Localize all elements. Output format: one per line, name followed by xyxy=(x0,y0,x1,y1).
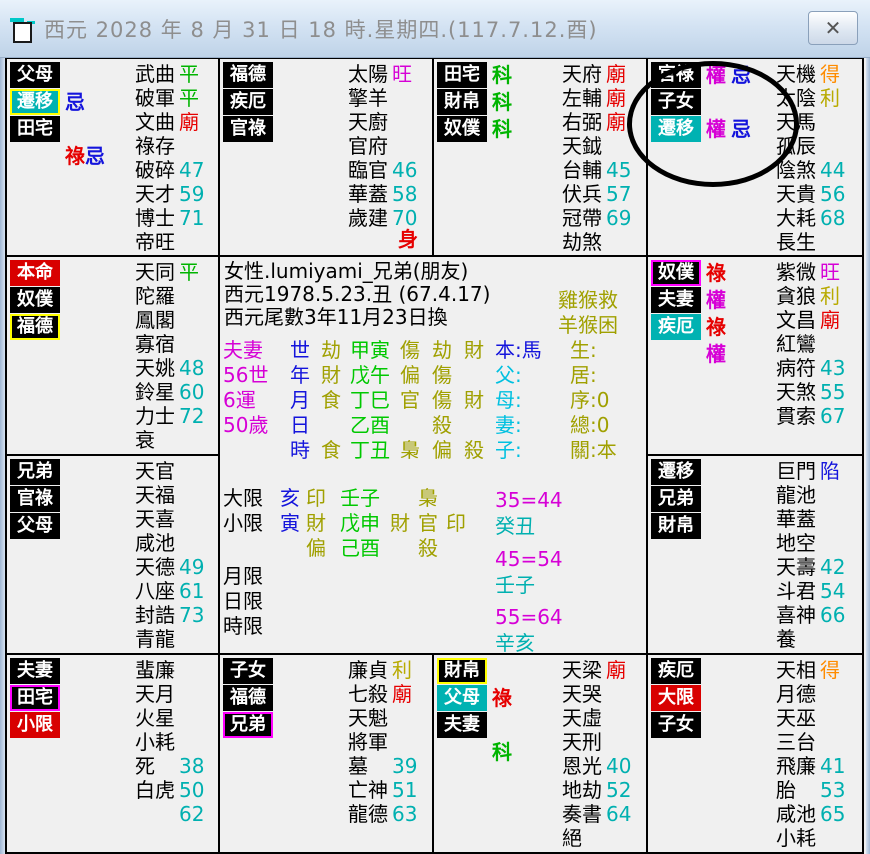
star-name: 華蓋 xyxy=(348,182,392,206)
star-name: 墓 xyxy=(348,754,392,778)
pillar-ten-god: 食 xyxy=(321,389,341,411)
palace-label: 兄弟 xyxy=(651,486,701,512)
star-value: 41 xyxy=(820,754,845,778)
limit-label: 時限 xyxy=(223,615,263,637)
star-name: 天巫 xyxy=(776,706,820,730)
star-line: 臨官46 xyxy=(348,158,417,182)
palace-label: 田宅 xyxy=(437,62,487,88)
fate-note: 序:0 xyxy=(570,389,609,411)
star-value: 得 xyxy=(820,62,840,86)
star-name: 官府 xyxy=(348,134,392,158)
decade-range: 35=44 xyxy=(495,489,563,511)
palace-label: 父母 xyxy=(10,62,60,88)
window-title: 西元 2028 年 8 月 31 日 18 時.星期四.(117.7.12.酉) xyxy=(44,14,598,44)
star-line: 龍德63 xyxy=(348,802,417,826)
star-line: 封誥73 xyxy=(135,603,204,627)
star-value: 57 xyxy=(606,182,631,206)
palace-label-row: 田宅 xyxy=(10,116,105,142)
palace-label-row: 疾厄 xyxy=(223,89,273,115)
palace-label-row: 田宅科 xyxy=(437,62,512,88)
star-name: 天才 xyxy=(135,182,179,206)
star-line: 天福 xyxy=(135,483,204,507)
palace-label: 子女 xyxy=(223,658,273,684)
star-line: 武曲平 xyxy=(135,62,204,86)
star-line: 天才59 xyxy=(135,182,204,206)
limit-label: 大限 xyxy=(223,487,263,509)
palace-cell-health[interactable]: 疾厄大限子女天相得月德天巫三台飛廉41胎53咸池65小耗 xyxy=(648,655,862,852)
pillar-stage: 夫妻 xyxy=(223,339,263,361)
star-line: 亡神51 xyxy=(348,778,417,802)
star-name: 七殺 xyxy=(348,682,392,706)
star-name: 紫微 xyxy=(776,260,820,284)
star-line: 龍池 xyxy=(776,483,845,507)
palace-label-row: 夫妻權 xyxy=(651,287,726,313)
star-line: 小耗 xyxy=(135,730,204,754)
pillar-branch-label: 世 xyxy=(290,339,310,361)
star-line: 廉貞利 xyxy=(348,658,417,682)
pillar-ten-god-slot: 財 xyxy=(464,339,484,361)
star-line: 衰 xyxy=(135,428,204,452)
star-name: 左輔 xyxy=(562,86,606,110)
star-line: 蜚廉 xyxy=(135,658,204,682)
palace-labels: 遷移兄弟財帛 xyxy=(651,459,701,540)
app-icon-page xyxy=(13,22,32,43)
transformation-mark-科: 科 xyxy=(492,116,512,142)
limit-ten-god-slot: 印 xyxy=(446,512,466,534)
star-name: 陀羅 xyxy=(135,284,179,308)
fate-note: 羊猴困 xyxy=(558,314,618,336)
star-name: 擎羊 xyxy=(348,86,392,110)
palace-label: 奴僕 xyxy=(437,116,487,142)
transformation-mark-祿: 祿 xyxy=(65,143,85,169)
star-line: 天廚 xyxy=(348,110,417,134)
star-name: 龍德 xyxy=(348,802,392,826)
pillar-ten-god-slot: 官 xyxy=(400,389,420,411)
limit-ten-god-slot: 官 xyxy=(418,512,438,534)
fate-note: 關:本 xyxy=(570,439,617,461)
star-name: 飛廉 xyxy=(776,754,820,778)
star-line: 天機得 xyxy=(776,62,845,86)
transformation-mark-祿: 祿 xyxy=(706,314,726,340)
star-line: 長生 xyxy=(776,230,845,254)
star-name: 白虎 xyxy=(135,778,179,802)
star-line: 冠帶69 xyxy=(562,206,631,230)
palace-label-row: 疾厄 xyxy=(651,658,701,684)
star-line: 飛廉41 xyxy=(776,754,845,778)
palace-label-row: 子女 xyxy=(223,658,273,684)
limit-ten-god-slot: 殺 xyxy=(418,537,438,559)
palace-label-row: 父母 xyxy=(10,513,60,539)
star-value: 利 xyxy=(820,284,840,308)
star-name: 恩光 xyxy=(562,754,606,778)
star-line: 絕 xyxy=(562,826,631,850)
star-line: 台輔45 xyxy=(562,158,631,182)
pillar-ganzhi: 丁丑 xyxy=(350,439,390,461)
star-value: 51 xyxy=(392,778,417,802)
star-line: 文曲廟 xyxy=(135,110,204,134)
limit-ganzhi: 壬子 xyxy=(340,487,380,509)
star-line: 七殺廟 xyxy=(348,682,417,706)
star-value: 46 xyxy=(392,158,417,182)
palace-label: 福德 xyxy=(10,314,60,340)
palace-label-row: 小限 xyxy=(10,712,60,738)
palace-label-row: 奴僕祿 xyxy=(651,260,726,286)
star-list: 天同平陀羅鳳閣寡宿天姚48鈴星60力士72衰 xyxy=(135,260,204,452)
star-line: 天喜 xyxy=(135,507,204,531)
star-line: 天官 xyxy=(135,459,204,483)
star-line: 八座61 xyxy=(135,579,204,603)
transformation-mark-祿: 祿 xyxy=(706,260,726,286)
star-name: 祿存 xyxy=(135,134,179,158)
limit-ten-god-slot: 財 xyxy=(390,512,410,534)
fate-note: 雞猴救 xyxy=(558,289,618,311)
palace-label: 夫妻 xyxy=(651,287,701,313)
star-line: 伏兵57 xyxy=(562,182,631,206)
star-value: 71 xyxy=(179,206,204,230)
limit-ganzhi: 戊申 xyxy=(340,512,380,534)
star-value: 廟 xyxy=(606,658,626,682)
star-line: 養 xyxy=(776,627,845,651)
star-name: 天魁 xyxy=(348,706,392,730)
palace-label-row: 財帛 xyxy=(651,513,701,539)
star-list: 廉貞利七殺廟天魁將軍墓39亡神51龍德63 xyxy=(348,658,417,826)
star-line: 天月 xyxy=(135,682,204,706)
star-line: 華蓋 xyxy=(776,507,845,531)
star-name: 地空 xyxy=(776,531,820,555)
palace-label: 疾厄 xyxy=(651,314,701,340)
decade-ganzhi: 辛亥 xyxy=(495,632,535,654)
star-value: 50 xyxy=(179,778,204,802)
star-line: 將軍 xyxy=(348,730,417,754)
star-line: 斗君54 xyxy=(776,579,845,603)
star-line: 太陽旺 xyxy=(348,62,417,86)
star-name: 武曲 xyxy=(135,62,179,86)
star-line: 貫索67 xyxy=(776,404,845,428)
star-line: 天鉞 xyxy=(562,134,631,158)
palace-label-row: 子女 xyxy=(651,712,701,738)
star-name: 病符 xyxy=(776,356,820,380)
fate-note: 居: xyxy=(570,364,597,386)
star-line: 病符43 xyxy=(776,356,845,380)
pillar-ten-god-slot: 殺 xyxy=(432,414,452,436)
star-name: 亡神 xyxy=(348,778,392,802)
limit-label: 日限 xyxy=(223,590,263,612)
star-value: 58 xyxy=(392,182,417,206)
palace-label-row: 疾厄祿 xyxy=(651,314,726,340)
pillar-ten-god-slot: 偏 xyxy=(400,364,420,386)
palace-label: 夫妻 xyxy=(10,658,60,684)
star-line: 天德49 xyxy=(135,555,204,579)
star-name: 奏書 xyxy=(562,802,606,826)
palace-label-row: 兄弟 xyxy=(10,459,60,485)
star-name: 天德 xyxy=(135,555,179,579)
star-name: 帝旺 xyxy=(135,230,179,254)
palace-label-row: 本命 xyxy=(10,260,60,286)
family-label: 子: xyxy=(495,439,522,461)
palace-label: 官祿 xyxy=(10,486,60,512)
palace-cell-wealth[interactable]: 財帛父母祿夫妻科天梁廟天哭天虛天刑恩光40地劫52奏書64絕 xyxy=(434,655,648,852)
star-list: 武曲平破軍平文曲廟祿存破碎47天才59博士71帝旺 xyxy=(135,62,204,254)
star-name: 胎 xyxy=(776,778,820,802)
palace-label: 父母 xyxy=(10,513,60,539)
star-value: 45 xyxy=(606,158,631,182)
star-line: 破軍平 xyxy=(135,86,204,110)
star-name: 華蓋 xyxy=(776,507,820,531)
star-line: 天貴56 xyxy=(776,182,845,206)
palace-label-row: 官祿 xyxy=(223,116,273,142)
decade-range: 45=54 xyxy=(495,548,563,570)
palace-labels: 財帛父母祿夫妻科 xyxy=(437,658,512,766)
palace-labels: 本命奴僕福德 xyxy=(10,260,60,341)
palace-extra-marks: 科 xyxy=(437,739,512,765)
star-name: 天梁 xyxy=(562,658,606,682)
star-name: 天同 xyxy=(135,260,179,284)
star-list: 天相得月德天巫三台飛廉41胎53咸池65小耗 xyxy=(776,658,845,850)
star-line: 鈴星60 xyxy=(135,380,204,404)
star-name: 蜚廉 xyxy=(135,658,179,682)
limit-ganzhi: 己酉 xyxy=(340,537,380,559)
star-name: 天相 xyxy=(776,658,820,682)
star-list: 巨門陷龍池華蓋地空天壽42斗君54喜神66養 xyxy=(776,459,845,651)
pillar-ten-god-slot: 傷 xyxy=(400,339,420,361)
palace-label: 遷移 xyxy=(651,459,701,485)
pillar-ten-god-slot: 偏 xyxy=(432,439,452,461)
star-line: 小耗 xyxy=(776,826,845,850)
star-name: 青龍 xyxy=(135,627,179,651)
star-name: 寡宿 xyxy=(135,332,179,356)
star-name: 力士 xyxy=(135,404,179,428)
limit-ten-god: 偏 xyxy=(306,537,326,559)
star-line: 青龍 xyxy=(135,627,204,651)
limit-branch: 寅 xyxy=(280,512,300,534)
star-name: 天煞 xyxy=(776,380,820,404)
star-name: 天官 xyxy=(135,459,179,483)
star-line: 博士71 xyxy=(135,206,204,230)
star-value: 得 xyxy=(820,658,840,682)
star-value: 44 xyxy=(820,158,845,182)
palace-cell-spouse[interactable]: 夫妻田宅小限蜚廉天月火星小耗死38白虎5062 xyxy=(7,655,220,852)
star-line: 白虎50 xyxy=(135,778,204,802)
star-value: 59 xyxy=(179,182,204,206)
palace-label: 大限 xyxy=(651,685,701,711)
star-name: 龍池 xyxy=(776,483,820,507)
star-line: 62 xyxy=(135,802,204,826)
star-line: 巨門陷 xyxy=(776,459,845,483)
star-line: 恩光40 xyxy=(562,754,631,778)
palace-label-row: 夫妻 xyxy=(437,712,512,738)
palace-labels: 田宅科財帛科奴僕科 xyxy=(437,62,512,143)
star-name: 鈴星 xyxy=(135,380,179,404)
pillar-ten-god-slot: 傷 xyxy=(432,364,452,386)
star-value: 廟 xyxy=(606,110,626,134)
pillar-ten-god-slot: 劫 xyxy=(432,339,452,361)
palace-labels: 夫妻田宅小限 xyxy=(10,658,60,739)
transformation-mark-科: 科 xyxy=(492,89,512,115)
palace-label: 財帛 xyxy=(651,513,701,539)
star-value: 65 xyxy=(820,802,845,826)
palace-label-row: 大限 xyxy=(651,685,701,711)
star-name: 右弼 xyxy=(562,110,606,134)
palace-label-row: 父母祿 xyxy=(437,685,512,711)
palace-label: 福德 xyxy=(223,685,273,711)
app-icon xyxy=(10,18,36,42)
palace-label: 財帛 xyxy=(437,658,487,684)
palace-label: 疾厄 xyxy=(651,658,701,684)
star-line: 鳳閣 xyxy=(135,308,204,332)
palace-extra-marks: 祿忌 xyxy=(10,143,105,169)
palace-labels: 兄弟官祿父母 xyxy=(10,459,60,540)
pillar-ten-god-slot: 梟 xyxy=(400,439,420,461)
star-value: 62 xyxy=(179,802,204,826)
star-name: 火星 xyxy=(135,706,179,730)
star-line: 咸池65 xyxy=(776,802,845,826)
palace-label: 子女 xyxy=(651,712,701,738)
star-line: 寡宿 xyxy=(135,332,204,356)
star-line: 天刑 xyxy=(562,730,631,754)
pillar-ten-god: 財 xyxy=(321,364,341,386)
pillar-ten-god: 食 xyxy=(321,439,341,461)
star-name: 咸池 xyxy=(776,802,820,826)
pillar-ganzhi: 丁巳 xyxy=(350,389,390,411)
decade-ganzhi: 壬子 xyxy=(495,574,535,596)
palace-extra-marks: 權 xyxy=(651,341,726,367)
star-name: 臨官 xyxy=(348,158,392,182)
star-name: 絕 xyxy=(562,826,606,850)
palace-cell-property[interactable]: 田宅科財帛科奴僕科天府廟左輔廟右弼廟天鉞台輔45伏兵57冠帶69劫煞 xyxy=(434,59,648,257)
close-button[interactable]: ✕ xyxy=(808,11,858,45)
palace-cell-parents[interactable]: 父母遷移忌田宅祿忌武曲平破軍平文曲廟祿存破碎47天才59博士71帝旺 xyxy=(7,59,220,257)
star-value: 利 xyxy=(392,658,412,682)
star-line: 大耗68 xyxy=(776,206,845,230)
star-value: 利 xyxy=(820,86,840,110)
limit-ten-god: 財 xyxy=(306,512,326,534)
palace-label-row: 奴僕科 xyxy=(437,116,512,142)
star-value: 63 xyxy=(392,802,417,826)
star-value: 廟 xyxy=(606,62,626,86)
palace-cell-servants[interactable]: 奴僕祿夫妻權疾厄祿權紫微旺貪狼利文昌廟紅鸞病符43天煞55貫索67 xyxy=(648,257,862,456)
palace-labels: 奴僕祿夫妻權疾厄祿權 xyxy=(651,260,726,368)
palace-label-row: 福德 xyxy=(10,314,60,340)
star-name: 地劫 xyxy=(562,778,606,802)
close-icon: ✕ xyxy=(825,16,842,40)
palace-label-row: 官祿 xyxy=(10,486,60,512)
window-edge-left xyxy=(0,0,5,854)
palace-label: 兄弟 xyxy=(223,712,273,738)
star-name: 小耗 xyxy=(776,826,820,850)
star-value: 61 xyxy=(179,579,204,603)
star-name: 博士 xyxy=(135,206,179,230)
pillar-stage: 56世 xyxy=(223,364,268,386)
pillar-ten-god: 劫 xyxy=(321,339,341,361)
star-name: 天喜 xyxy=(135,507,179,531)
star-list: 天梁廟天哭天虛天刑恩光40地劫52奏書64絕 xyxy=(562,658,631,850)
star-line: 紅鸞 xyxy=(776,332,845,356)
palace-cell-travel[interactable]: 遷移兄弟財帛巨門陷龍池華蓋地空天壽42斗君54喜神66養 xyxy=(648,456,862,655)
star-line: 天虛 xyxy=(562,706,631,730)
family-label: 本:馬 xyxy=(495,339,542,361)
star-name: 天姚 xyxy=(135,356,179,380)
star-value: 55 xyxy=(820,380,845,404)
star-name: 台輔 xyxy=(562,158,606,182)
palace-labels: 福德疾厄官祿 xyxy=(223,62,273,143)
star-value: 旺 xyxy=(392,62,412,86)
star-line: 奏書64 xyxy=(562,802,631,826)
star-line: 陀羅 xyxy=(135,284,204,308)
palace-label-row: 福德 xyxy=(223,62,273,88)
star-name: 斗君 xyxy=(776,579,820,603)
star-value: 56 xyxy=(820,182,845,206)
star-value: 43 xyxy=(820,356,845,380)
star-value: 69 xyxy=(606,206,631,230)
palace-cell-children[interactable]: 子女福德兄弟廉貞利七殺廟天魁將軍墓39亡神51龍德63 xyxy=(220,655,434,852)
star-name: 天刑 xyxy=(562,730,606,754)
pillar-ten-god-slot: 殺 xyxy=(464,439,484,461)
star-line: 文昌廟 xyxy=(776,308,845,332)
decade-range: 55=64 xyxy=(495,606,563,628)
star-name: 伏兵 xyxy=(562,182,606,206)
star-line: 左輔廟 xyxy=(562,86,631,110)
transformation-mark-科: 科 xyxy=(492,62,512,88)
star-line: 力士72 xyxy=(135,404,204,428)
pillar-branch-label: 日 xyxy=(290,414,310,436)
limit-label: 小限 xyxy=(223,512,263,534)
palace-label: 田宅 xyxy=(10,116,60,142)
palace-label-row: 福德 xyxy=(223,685,273,711)
star-name: 破軍 xyxy=(135,86,179,110)
star-line: 貪狼利 xyxy=(776,284,845,308)
star-line: 劫煞 xyxy=(562,230,631,254)
star-name: 月德 xyxy=(776,682,820,706)
star-name: 天哭 xyxy=(562,682,606,706)
palace-label: 疾厄 xyxy=(223,89,273,115)
pillar-ten-god-slot: 傷 xyxy=(432,389,452,411)
limit-label: 月限 xyxy=(223,565,263,587)
star-name: 八座 xyxy=(135,579,179,603)
palace-label: 福德 xyxy=(223,62,273,88)
palace-cell-self[interactable]: 本命奴僕福德天同平陀羅鳳閣寡宿天姚48鈴星60力士72衰 xyxy=(7,257,220,456)
star-value: 廟 xyxy=(392,682,412,706)
palace-labels: 子女福德兄弟 xyxy=(223,658,273,739)
star-line: 火星 xyxy=(135,706,204,730)
star-name: 陰煞 xyxy=(776,158,820,182)
star-name: 咸池 xyxy=(135,531,179,555)
star-line: 咸池 xyxy=(135,531,204,555)
star-value: 49 xyxy=(179,555,204,579)
star-name: 喜神 xyxy=(776,603,820,627)
star-line: 天相得 xyxy=(776,658,845,682)
palace-cell-fortune[interactable]: 福德疾厄官祿太陽旺擎羊天廚官府臨官46華蓋58歲建70身 xyxy=(220,59,434,257)
palace-label: 遷移 xyxy=(10,89,60,115)
limit-ten-god-slot: 梟 xyxy=(418,487,438,509)
palace-cell-siblings[interactable]: 兄弟官祿父母天官天福天喜咸池天德49八座61封誥73青龍 xyxy=(7,456,220,655)
transformation-mark-權: 權 xyxy=(706,341,726,367)
star-value: 70 xyxy=(392,206,417,230)
star-line: 天壽42 xyxy=(776,555,845,579)
info-line: 女性.lumiyami_兄弟(朋友) xyxy=(224,260,468,282)
transformation-mark-忌: 忌 xyxy=(85,143,105,169)
app-window: 西元 2028 年 8 月 31 日 18 時.星期四.(117.7.12.酉)… xyxy=(0,0,870,854)
transformation-mark-科: 科 xyxy=(492,739,512,765)
star-value: 68 xyxy=(820,206,845,230)
star-value: 陷 xyxy=(820,459,840,483)
star-name: 巨門 xyxy=(776,459,820,483)
star-value: 廟 xyxy=(179,110,199,134)
limit-ten-god: 印 xyxy=(306,487,326,509)
palace-label-row: 父母 xyxy=(10,62,105,88)
limit-branch: 亥 xyxy=(280,487,300,509)
star-line: 喜神66 xyxy=(776,603,845,627)
star-value: 廟 xyxy=(606,86,626,110)
